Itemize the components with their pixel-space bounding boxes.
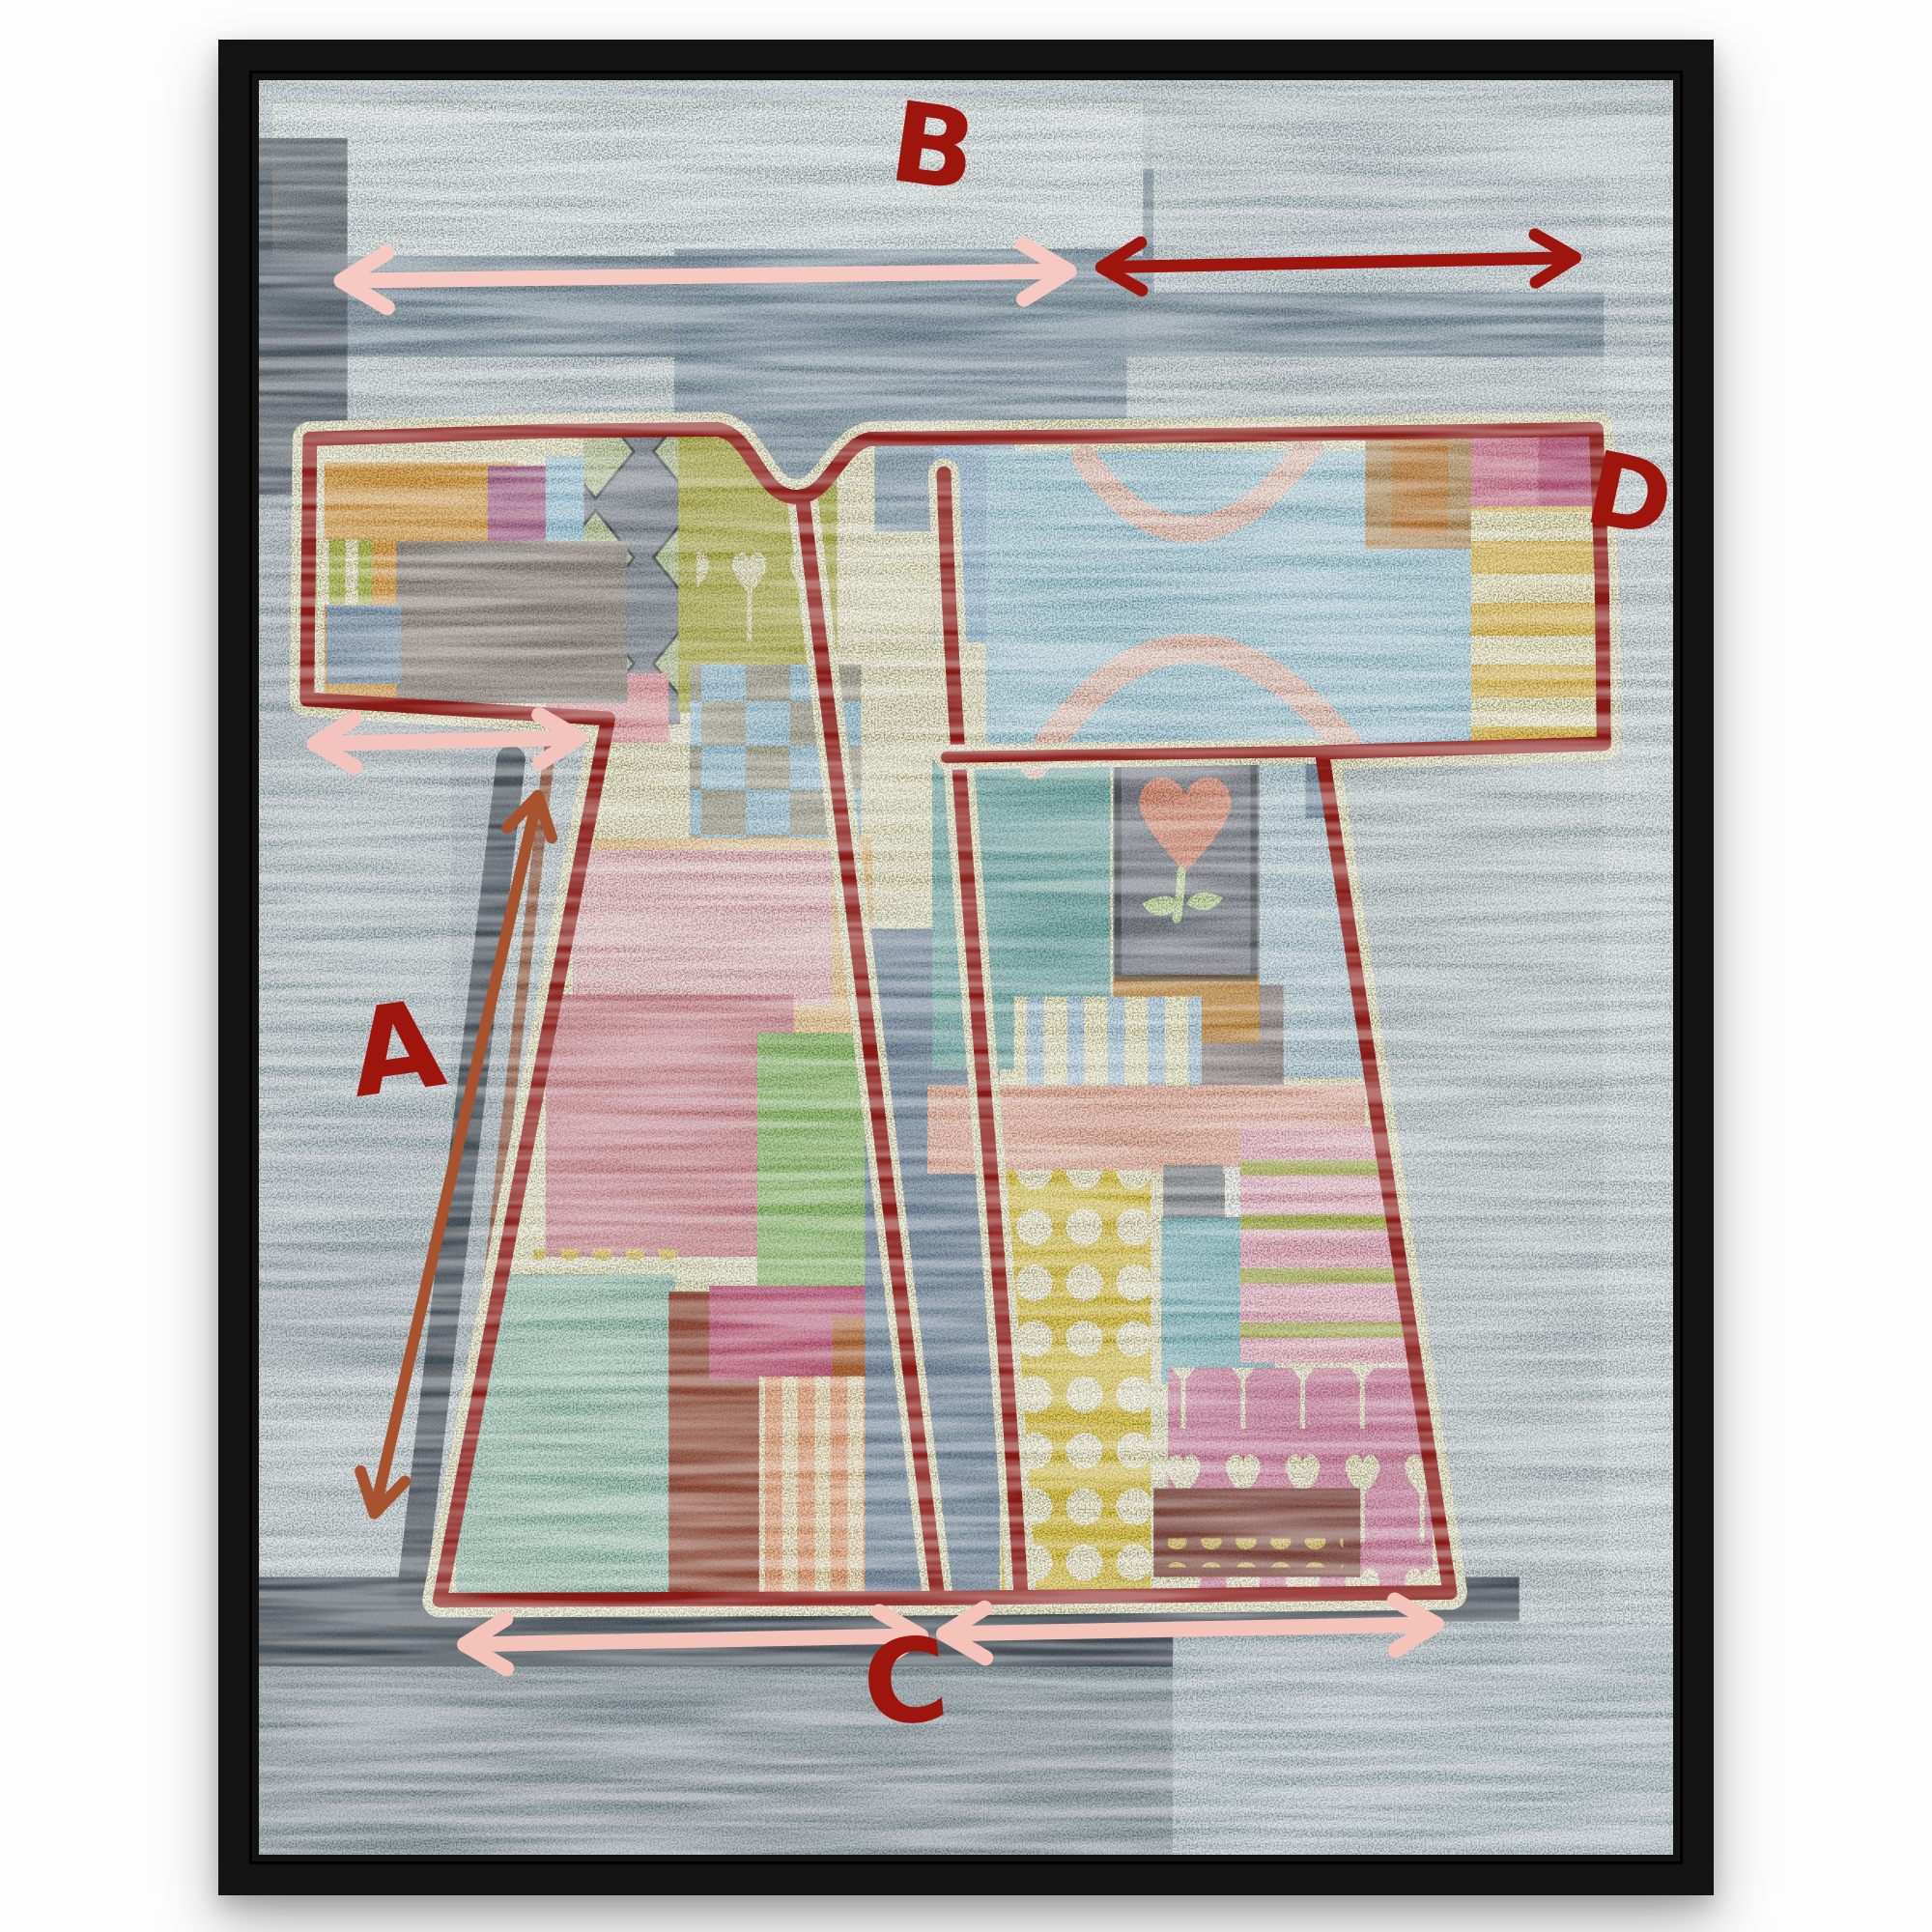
page-background: BDAC	[0, 0, 1932, 1932]
letter-A: A	[341, 974, 453, 1125]
painting-canvas: BDAC	[259, 80, 1673, 1855]
letter-B: B	[883, 80, 984, 217]
letter-C: C	[858, 1612, 953, 1753]
kimono-painting: BDAC	[259, 80, 1673, 1855]
texture-brushstreaks	[259, 80, 1673, 1855]
picture-frame: BDAC	[218, 40, 1714, 1895]
